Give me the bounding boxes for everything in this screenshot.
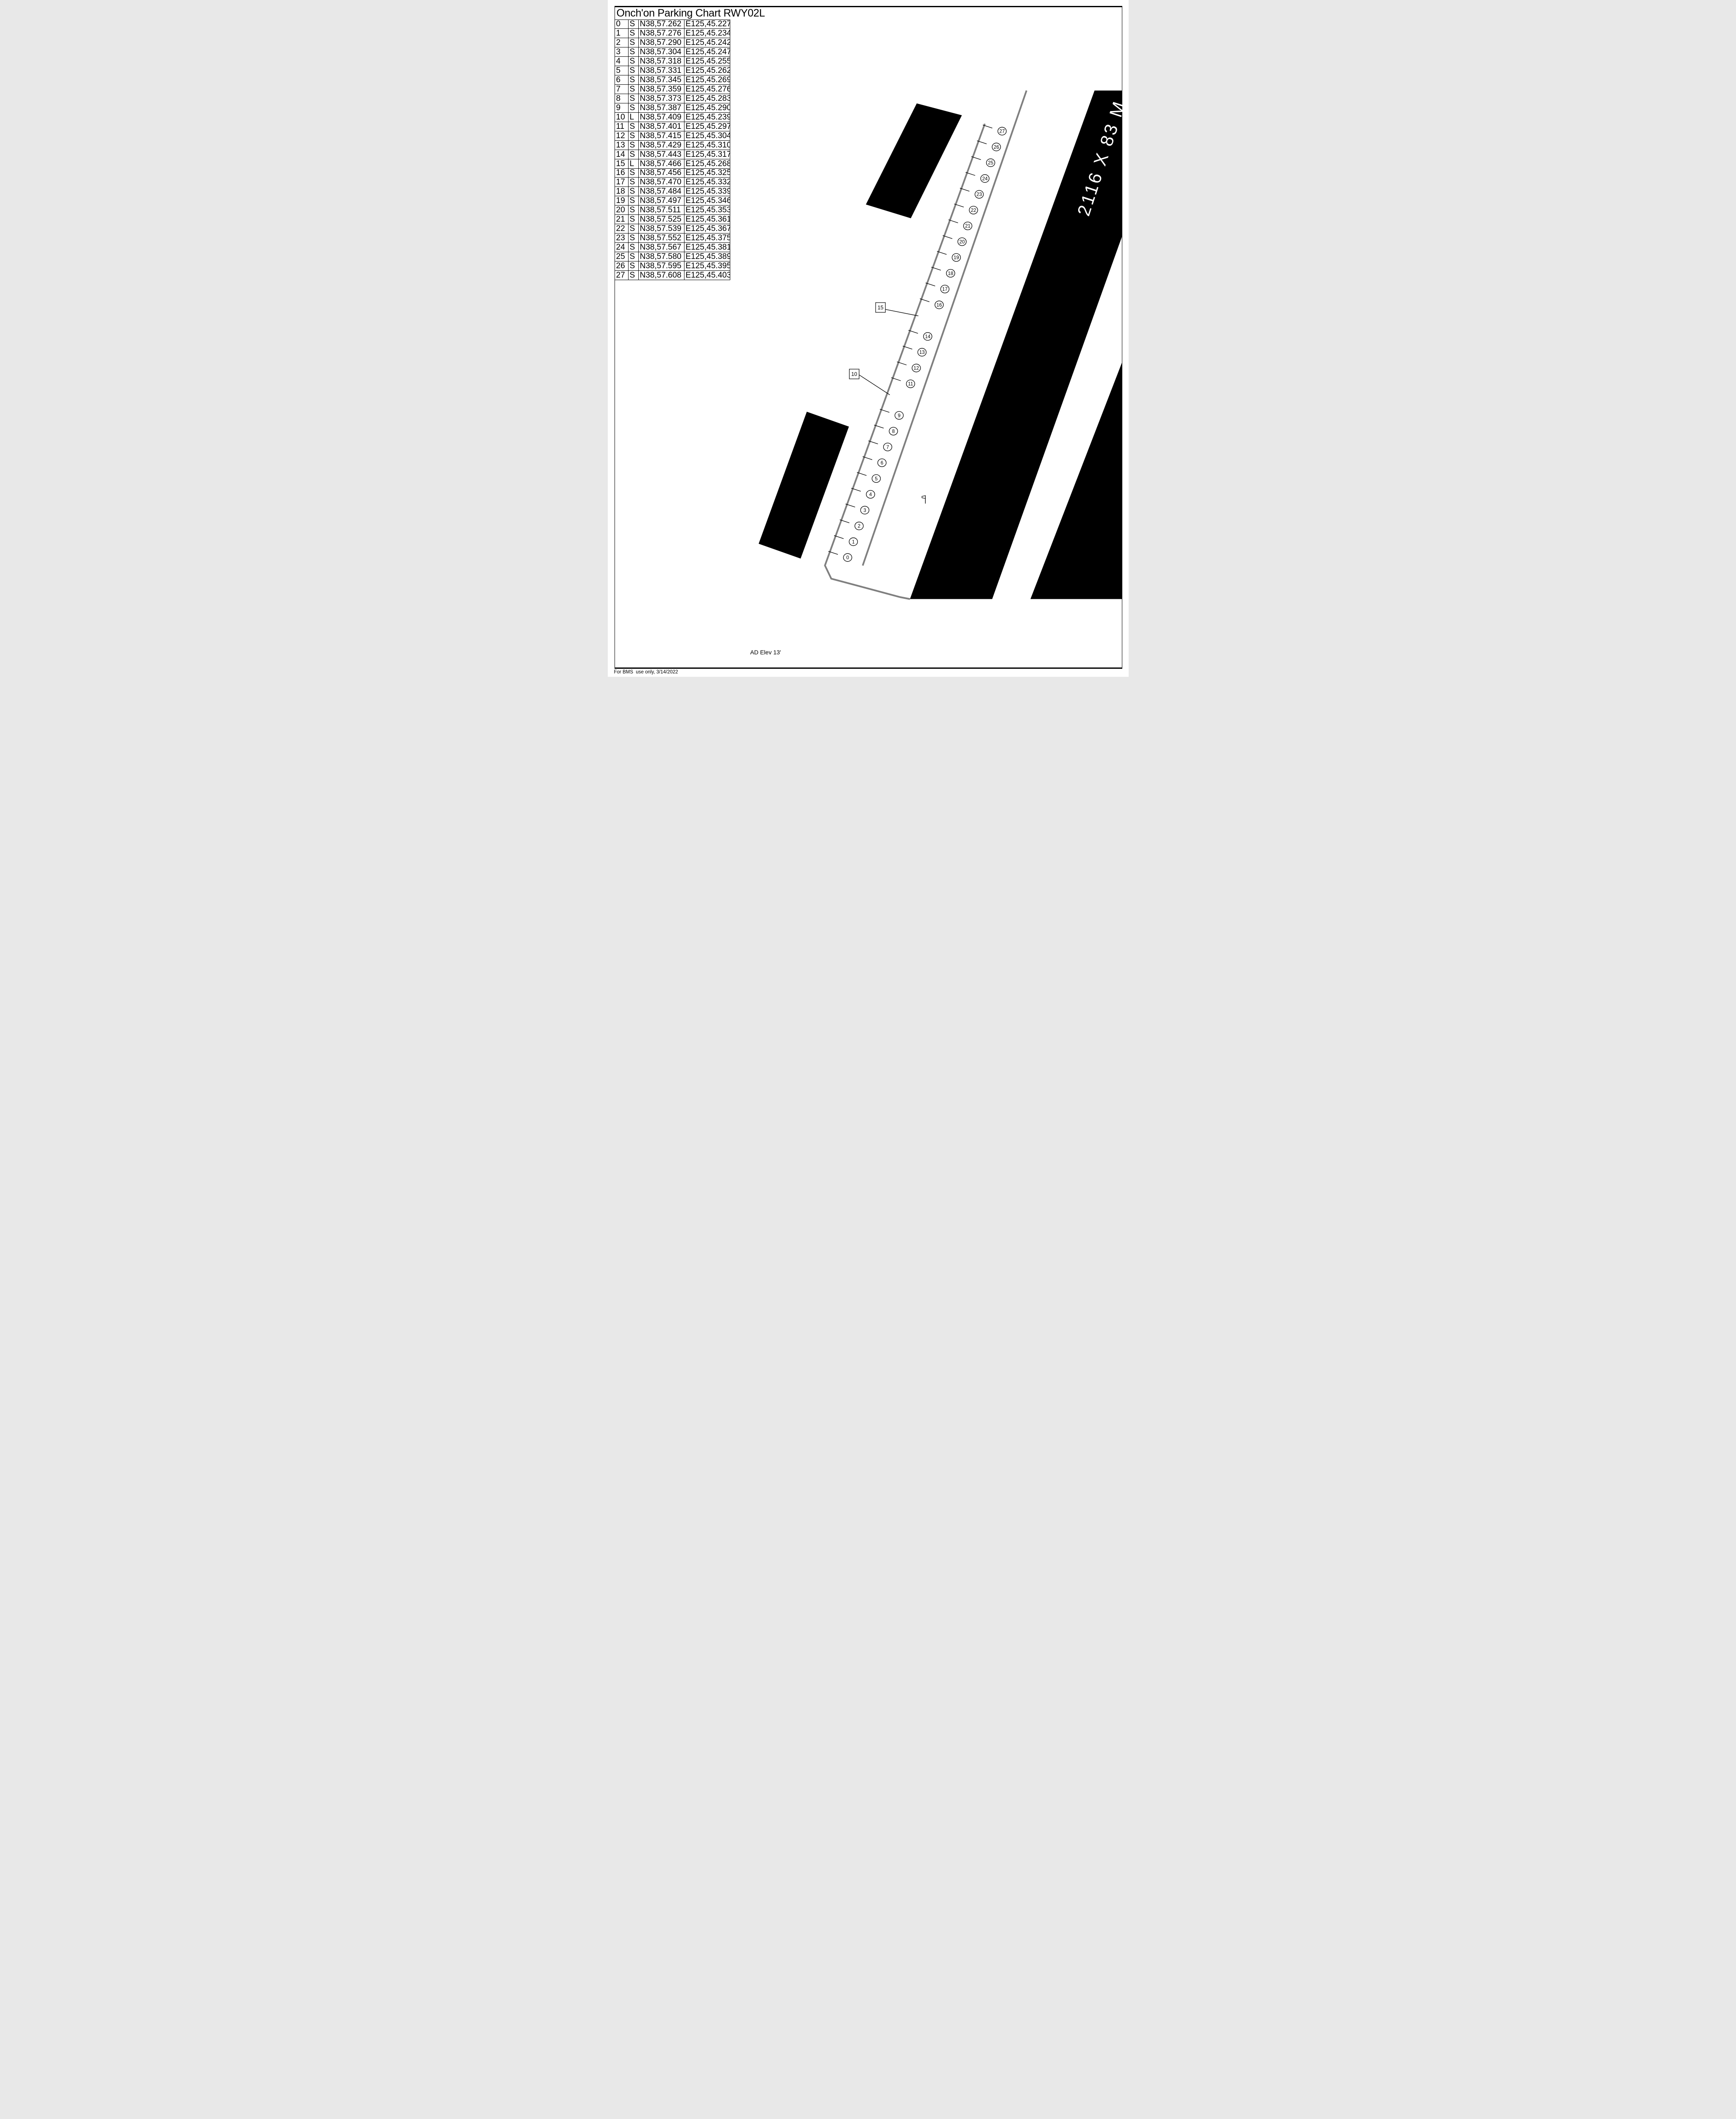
parking-spot-24: 24 (965, 172, 989, 183)
parking-spot-10: 10 (849, 369, 890, 395)
spot-number: 21 (965, 224, 970, 229)
parking-spot-5: 5 (857, 473, 880, 483)
spot-number: 0 (846, 556, 849, 561)
spot-number: 17 (942, 287, 947, 292)
spot-number: 4 (869, 492, 872, 498)
spot-number: 2 (857, 524, 860, 529)
spot-number: 12 (913, 366, 919, 371)
parking-spot-27: 27 (982, 125, 1006, 135)
spot-number: 1 (852, 539, 854, 545)
spot-number: 6 (880, 461, 883, 466)
parking-spot-6: 6 (862, 456, 886, 467)
building-north (866, 103, 962, 218)
spot-number: 26 (993, 145, 999, 150)
footer-note: For BMS use only, 3/14/2022 (614, 670, 678, 675)
spot-number: 27 (999, 129, 1004, 134)
parking-spot-11: 11 (891, 378, 915, 388)
airfield-diagram: 2116 X 83 M 0123456789101112131415161718… (608, 0, 1129, 677)
parking-spot-20: 20 (943, 236, 966, 246)
spot-number: 9 (898, 413, 900, 418)
spot-leader-line (885, 309, 918, 316)
spot-number: 18 (948, 271, 953, 276)
spot-number: 11 (908, 382, 913, 387)
spot-leader-line (859, 375, 890, 395)
parking-spot-21: 21 (948, 220, 972, 230)
parking-spot-8: 8 (874, 425, 898, 435)
ad-elevation-label: AD Elev 13' (750, 649, 781, 656)
parking-spot-12: 12 (897, 362, 921, 372)
spot-number: 16 (936, 303, 942, 308)
spot-number: 15 (877, 305, 883, 311)
spot-number: 22 (971, 208, 976, 213)
parking-spot-25: 25 (971, 156, 995, 167)
parking-spot-23: 23 (960, 188, 983, 198)
spot-number: 20 (959, 239, 965, 245)
parking-spot-13: 13 (902, 346, 926, 356)
parking-spot-4: 4 (851, 488, 875, 498)
parking-spot-19: 19 (937, 251, 960, 261)
parking-spot-14: 14 (908, 330, 932, 340)
spot-number: 19 (953, 256, 959, 261)
parking-spot-7: 7 (868, 441, 892, 451)
spot-number: 14 (925, 334, 930, 339)
parking-chart-page: Onch'on Parking Chart RWY02L 0SN38,57.26… (608, 0, 1129, 677)
parking-spot-3: 3 (845, 504, 869, 514)
spot-number: 3 (863, 508, 866, 513)
parking-spot-15: 15 (876, 303, 918, 316)
spot-number: 5 (875, 476, 877, 481)
spot-number: 25 (988, 161, 993, 166)
spot-number: 8 (892, 429, 894, 434)
parking-spot-17: 17 (925, 283, 949, 293)
spot-number: 10 (851, 371, 857, 377)
spot-number: 24 (982, 176, 988, 181)
parking-spot-0: 0 (828, 551, 852, 562)
parking-spot-26: 26 (977, 141, 1001, 151)
parking-spot-1: 1 (834, 536, 857, 546)
spot-number: 13 (919, 350, 924, 355)
spot-number: 23 (976, 192, 982, 197)
parking-spot-2: 2 (840, 520, 863, 530)
parking-spot-18: 18 (931, 267, 955, 277)
parking-spot-9: 9 (879, 409, 903, 420)
spot-number: 7 (886, 445, 889, 450)
parking-spot-22: 22 (954, 204, 978, 214)
parking-spot-16: 16 (920, 299, 943, 309)
windsock-icon (922, 496, 925, 504)
